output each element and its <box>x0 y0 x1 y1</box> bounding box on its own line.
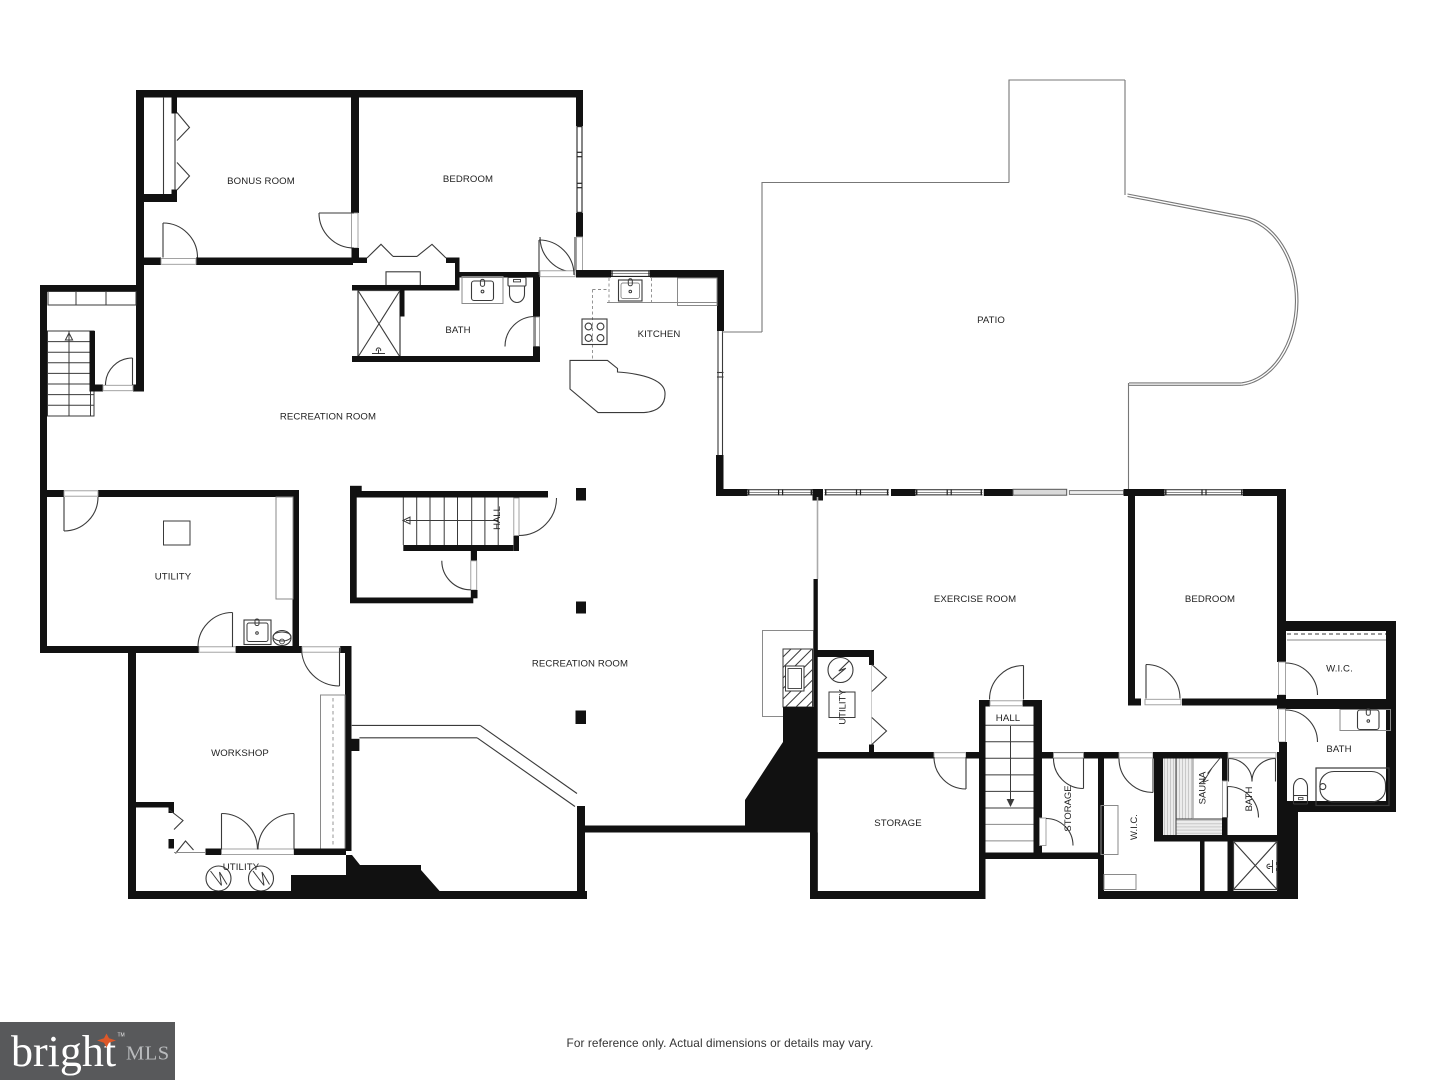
svg-text:W.I.C.: W.I.C. <box>1326 664 1353 675</box>
svg-text:TM: TM <box>118 1033 125 1039</box>
svg-text:BEDROOM: BEDROOM <box>443 174 493 185</box>
svg-text:UTILITY: UTILITY <box>155 572 192 583</box>
svg-text:STORAGE: STORAGE <box>874 818 921 829</box>
svg-text:BATH: BATH <box>1326 744 1351 755</box>
svg-text:WORKSHOP: WORKSHOP <box>211 748 269 759</box>
svg-text:UTILITY: UTILITY <box>223 862 260 873</box>
svg-text:STORAGE: STORAGE <box>1063 785 1074 831</box>
svg-text:BONUS ROOM: BONUS ROOM <box>227 176 295 187</box>
svg-text:For reference only. Actual dim: For reference only. Actual dimensions or… <box>567 1036 874 1050</box>
svg-text:HALL: HALL <box>996 713 1021 724</box>
svg-text:W.I.C.: W.I.C. <box>1129 814 1140 840</box>
svg-text:RECREATION ROOM: RECREATION ROOM <box>532 659 628 670</box>
svg-text:EXERCISE ROOM: EXERCISE ROOM <box>934 594 1016 605</box>
svg-text:KITCHEN: KITCHEN <box>638 329 681 340</box>
svg-text:BATH: BATH <box>445 325 470 336</box>
svg-text:BATH: BATH <box>1244 787 1255 812</box>
svg-text:SAUNA: SAUNA <box>1198 771 1209 804</box>
svg-text:UTILITY: UTILITY <box>838 689 849 725</box>
svg-text:MLS: MLS <box>126 1043 170 1065</box>
svg-text:BEDROOM: BEDROOM <box>1185 594 1235 605</box>
svg-text:bright: bright <box>11 1027 116 1076</box>
svg-text:RECREATION ROOM: RECREATION ROOM <box>280 412 376 423</box>
svg-text:PATIO: PATIO <box>977 315 1005 326</box>
svg-text:HALL: HALL <box>492 506 503 530</box>
